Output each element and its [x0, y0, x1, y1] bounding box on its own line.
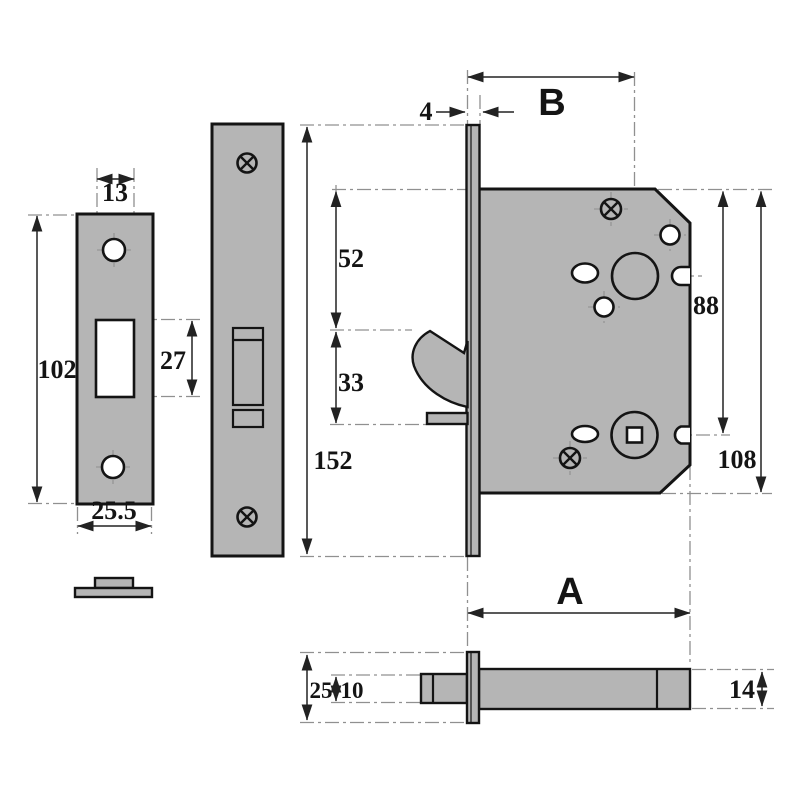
- strike-plate-front-view: 13 102 27 25.5: [28, 168, 204, 534]
- lock-forend-strip: [467, 125, 480, 556]
- dim-plate-height: 102: [37, 216, 77, 502]
- dim-edge-stub: 10: [336, 677, 364, 703]
- dim-forend-height: 152: [307, 127, 353, 554]
- case-slot-upper: [572, 264, 598, 283]
- case-slot-lower: [572, 426, 598, 442]
- latch-cutout: [96, 320, 134, 397]
- dim-slot-width: 13: [97, 178, 134, 207]
- case-edge-notch-lower: [675, 427, 690, 444]
- hook-bolt: [413, 331, 468, 407]
- dim-backset: B: [468, 77, 634, 124]
- forend-screw-top: [238, 154, 257, 173]
- dim-label-top-to-spindle: 88: [693, 291, 719, 320]
- lock-dimension-drawing: 13 102 27 25.5: [0, 0, 800, 800]
- dim-case-depth: A: [468, 571, 690, 613]
- dim-label-edge-stub: 10: [341, 678, 364, 703]
- strike-profile-base: [75, 588, 152, 597]
- dim-faceplate-thickness: 4: [420, 97, 515, 126]
- dim-label-case-height: 108: [718, 445, 757, 474]
- dim-hook-opening: 33: [336, 332, 364, 423]
- dim-label-case-depth: A: [556, 571, 583, 613]
- dim-top-to-spindle: 88: [693, 192, 723, 434]
- dim-label-faceplate-thickness: 4: [420, 97, 433, 126]
- hook-guide-bar: [427, 413, 468, 424]
- dim-label-backset: B: [538, 82, 565, 124]
- dim-label-slot-width: 13: [102, 178, 128, 207]
- dim-label-edge-thickness: 14: [729, 675, 755, 704]
- dim-label-edge-overall: 25: [310, 678, 333, 703]
- dim-slot-height: 27: [160, 321, 192, 395]
- lock-case-view: B 4 52 33 88 108 A: [330, 70, 772, 666]
- dim-label-slot-height: 27: [160, 346, 186, 375]
- edge-forend-flange: [467, 652, 479, 723]
- dim-label-hook-opening: 33: [338, 368, 364, 397]
- strike-profile-boss: [95, 578, 133, 588]
- dim-label-plate-width: 25.5: [91, 496, 137, 525]
- forend-screw-bottom: [238, 508, 257, 527]
- dim-edge-overall: 25: [307, 655, 333, 720]
- edge-follower-stub: [421, 674, 467, 703]
- strike-plate-profile-view: [75, 578, 152, 597]
- spindle-follower: [612, 412, 658, 458]
- case-edge-notch-upper: [672, 267, 690, 285]
- dim-label-plate-height: 102: [38, 355, 77, 384]
- edge-case-bar: [479, 669, 690, 709]
- dim-label-forend-height: 152: [314, 446, 353, 475]
- drawing-canvas: 13 102 27 25.5: [0, 0, 800, 800]
- cylinder-hole: [612, 253, 658, 299]
- lock-edge-view: 25 10 14: [300, 652, 774, 723]
- dim-top-to-hook: 52: [336, 192, 364, 329]
- spindle-square-hole: [627, 428, 642, 443]
- dim-case-height: 108: [718, 192, 762, 493]
- dim-label-top-to-hook: 52: [338, 244, 364, 273]
- dim-edge-thickness: 14: [729, 672, 762, 706]
